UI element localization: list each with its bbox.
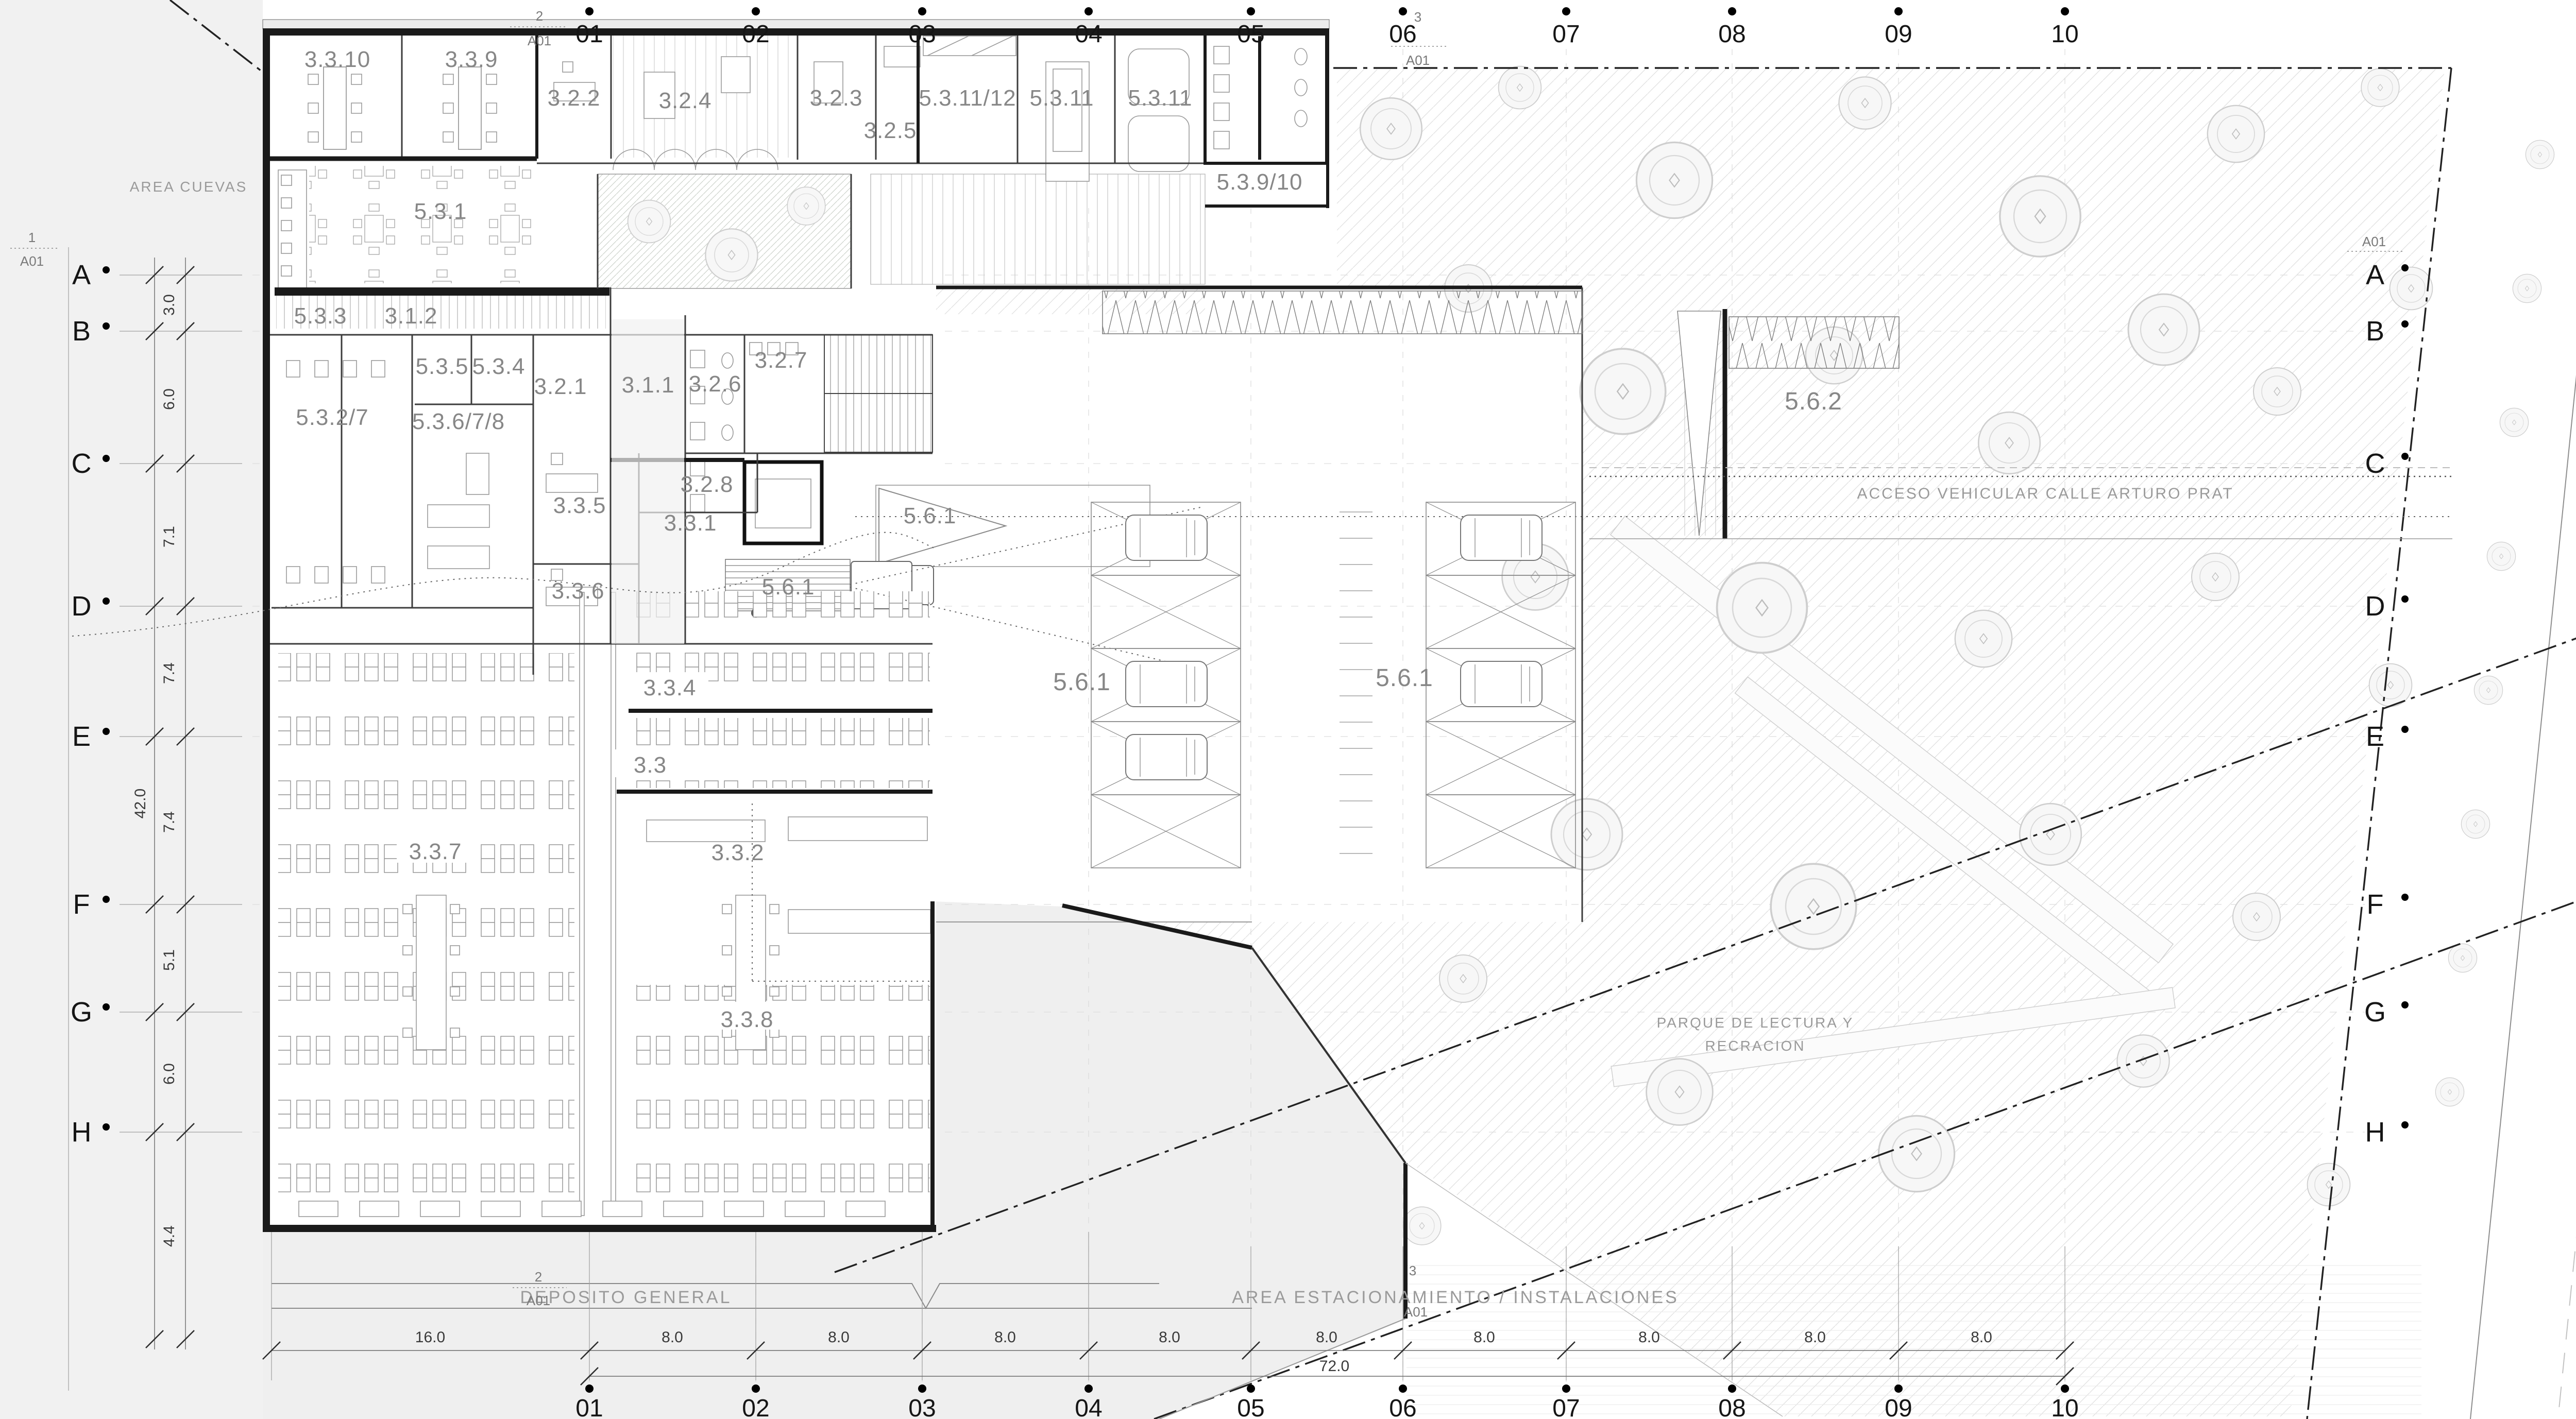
room-label: 5.6.1 — [904, 503, 957, 528]
bar-counter — [275, 287, 609, 296]
bike-band-5-6-2 — [1729, 317, 1899, 368]
park-label-line2: RECRACION — [1705, 1038, 1805, 1054]
grid-row-label: G — [2364, 997, 2386, 1028]
dim-left: 7.4 — [161, 811, 178, 833]
room-label: 5.3.5 — [416, 354, 469, 379]
louvre-court — [871, 174, 1205, 284]
room-label: 3.3.7 — [409, 839, 462, 864]
room-label: 5.6.1 — [1053, 669, 1111, 696]
grid-col-label: 08 — [1718, 21, 1745, 48]
room-label: 5.3.11/12 — [919, 86, 1016, 111]
svg-text:A01: A01 — [1406, 53, 1430, 68]
meeting-table — [443, 67, 497, 149]
dim-left: 6.0 — [161, 388, 178, 410]
room-label: 5.3.11 — [1128, 86, 1192, 111]
room-label: 3.2.6 — [689, 371, 742, 397]
room-label: 3.2.7 — [755, 348, 808, 373]
room-label: 3.1.2 — [385, 303, 438, 329]
grid-row-label: B — [72, 316, 91, 347]
room-label: 5.3.3 — [294, 303, 347, 329]
car — [1126, 734, 1207, 780]
dim-left-total: 42.0 — [132, 789, 149, 818]
dim-bottom: 8.0 — [1473, 1329, 1495, 1346]
room-label: 3.3.10 — [304, 47, 370, 72]
grid-row-label: C — [72, 448, 92, 479]
room-label: 3.2.4 — [659, 88, 712, 113]
room-label: 5.3.9/10 — [1216, 169, 1302, 195]
estacionamiento-label: AREA ESTACIONAMIENTO / INSTALACIONES — [1232, 1288, 1679, 1307]
room-label: 5.3.2/7 — [296, 405, 369, 430]
svg-text:2: 2 — [535, 1269, 542, 1285]
grid-col-label: 02 — [742, 21, 769, 48]
dim-bottom: 8.0 — [1804, 1329, 1826, 1346]
room-label: 3.2.2 — [548, 86, 601, 111]
room-label: 3.3.5 — [553, 493, 606, 518]
svg-text:1: 1 — [28, 230, 36, 245]
grid-row-label: A — [72, 260, 91, 290]
grid-col-label: 01 — [575, 21, 603, 48]
grid-col-label: 08 — [1718, 1395, 1745, 1419]
grid-row-label: E — [2366, 721, 2384, 752]
room-label: 3.3.8 — [721, 1007, 774, 1032]
room-label: 3.3.6 — [552, 578, 605, 604]
svg-text:3: 3 — [1409, 1263, 1416, 1278]
room-label: 5.3.1 — [414, 199, 467, 224]
dim-left: 6.0 — [161, 1063, 178, 1085]
grid-row-label: E — [72, 721, 91, 752]
grid-row-label: B — [2366, 316, 2384, 347]
grid-col-label: 03 — [908, 1395, 936, 1419]
room-label: 5.3.11 — [1029, 86, 1094, 111]
grid-col-label: 04 — [1075, 1395, 1102, 1419]
grid-col-label: 06 — [1389, 1395, 1416, 1419]
car — [1461, 661, 1542, 707]
room-label: 3.1.1 — [622, 372, 675, 398]
svg-text:2: 2 — [536, 8, 543, 24]
dim-bottom-total: 72.0 — [1319, 1358, 1349, 1375]
grid-row-label: H — [2365, 1117, 2385, 1148]
room-label: 3.2.1 — [534, 374, 587, 399]
grid-col-label: 10 — [2051, 21, 2078, 48]
room-label: 5.3.4 — [472, 354, 526, 379]
grid-row-label: D — [72, 591, 92, 622]
svg-text:A01: A01 — [2362, 234, 2386, 249]
grid-row-label: G — [71, 997, 92, 1028]
grid-row-label: A — [2366, 260, 2384, 290]
svg-text:A01: A01 — [527, 1293, 550, 1308]
grid-col-label: 01 — [575, 1395, 603, 1419]
parapet — [263, 20, 1329, 29]
room-label: 5.6.1 — [762, 574, 815, 600]
dim-bottom: 8.0 — [1159, 1329, 1180, 1346]
room-label: 3.3.2 — [711, 840, 765, 865]
svg-text:3: 3 — [1414, 9, 1421, 25]
freight-elevator — [744, 462, 822, 543]
dim-left: 4.4 — [161, 1225, 178, 1247]
grid-row-label: D — [2365, 591, 2385, 622]
room-label: 3.2.8 — [681, 472, 734, 497]
deposito-label: DEPOSITO GENERAL — [520, 1288, 732, 1307]
room-label: 3.2.3 — [810, 86, 863, 111]
grid-col-label: 09 — [1885, 21, 1912, 48]
grid-col-label: 03 — [908, 21, 936, 48]
dim-bottom: 8.0 — [828, 1329, 850, 1346]
room-label: 5.3.6/7/8 — [412, 409, 505, 434]
grid-col-label: 02 — [742, 1395, 769, 1419]
grid-col-label: 04 — [1075, 21, 1102, 48]
dim-bottom: 8.0 — [994, 1329, 1016, 1346]
grid-col-label: 05 — [1237, 1395, 1264, 1419]
svg-text:A01: A01 — [20, 253, 44, 269]
car — [1461, 515, 1542, 560]
cafeteria-tables — [309, 166, 536, 283]
area-cuevas-label: AREA CUEVAS — [130, 179, 248, 195]
grid-col-label: 07 — [1552, 21, 1580, 48]
grid-col-label: 09 — [1885, 1395, 1912, 1419]
left-site-area — [0, 0, 263, 1419]
acceso-label: ACCESO VEHICULAR CALLE ARTURO PRAT — [1857, 485, 2233, 502]
park-label-line1: PARQUE DE LECTURA Y — [1657, 1015, 1854, 1031]
svg-text:A01: A01 — [528, 33, 551, 48]
grid-row-label: F — [73, 889, 90, 920]
dim-left: 3.0 — [161, 294, 178, 316]
room-label: 3.3.1 — [664, 510, 717, 536]
room-label: 5.6.1 — [1376, 664, 1433, 692]
room-label: 3.3 — [634, 753, 667, 778]
room-label: 3.3.9 — [445, 47, 498, 72]
floor-plan: CALLE ARTURO PRAT RIO CALLE CALLE — [0, 0, 2576, 1419]
room-label: 5.6.2 — [1785, 388, 1842, 415]
grid-col-label: 05 — [1237, 21, 1264, 48]
grid-col-label: 10 — [2051, 1395, 2078, 1419]
vent-band — [1103, 291, 1582, 334]
meeting-table — [308, 67, 362, 149]
grid-row-label: C — [2365, 448, 2385, 479]
dim-left: 5.1 — [161, 949, 178, 971]
grid-col-label: 06 — [1389, 21, 1416, 48]
room-label: 3.2.5 — [864, 118, 917, 143]
room-label: 3.3.4 — [643, 675, 697, 700]
dim-bottom: 8.0 — [1971, 1329, 1992, 1346]
car — [1126, 661, 1207, 707]
car — [1126, 515, 1207, 560]
grid-row-label: F — [2367, 889, 2384, 920]
dim-bottom: 8.0 — [1316, 1329, 1337, 1346]
dim-bottom: 16.0 — [415, 1329, 445, 1346]
dim-left: 7.4 — [161, 662, 178, 684]
svg-text:A01: A01 — [1404, 1304, 1428, 1320]
dim-bottom: 8.0 — [662, 1329, 683, 1346]
dim-left: 7.1 — [161, 526, 178, 548]
grid-col-label: 07 — [1552, 1395, 1580, 1419]
grid-row-label: H — [72, 1117, 92, 1148]
dim-bottom: 8.0 — [1638, 1329, 1660, 1346]
